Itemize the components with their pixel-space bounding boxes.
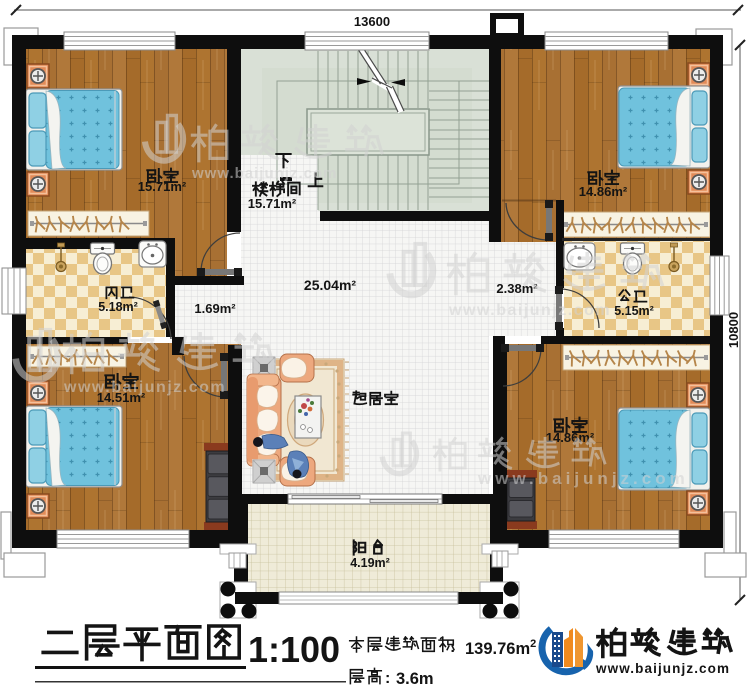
svg-text:3.6m: 3.6m bbox=[396, 670, 434, 688]
svg-text::: : bbox=[385, 670, 390, 687]
svg-text:4.19m²: 4.19m² bbox=[350, 556, 390, 570]
svg-text:1.69m²: 1.69m² bbox=[194, 301, 236, 316]
svg-text:5.15m²: 5.15m² bbox=[614, 304, 654, 318]
svg-text:10800: 10800 bbox=[726, 312, 741, 348]
svg-text:15.71m²: 15.71m² bbox=[248, 196, 297, 211]
svg-text:139.76m2: 139.76m2 bbox=[465, 638, 536, 658]
svg-text:www.baijunjz.com: www.baijunjz.com bbox=[191, 165, 337, 182]
svg-text:www.baijunjz.com: www.baijunjz.com bbox=[477, 469, 689, 488]
svg-text:www.baijunjz.com: www.baijunjz.com bbox=[448, 302, 611, 319]
svg-text:www.baijunjz.com: www.baijunjz.com bbox=[63, 379, 226, 396]
svg-text::: : bbox=[450, 639, 455, 656]
svg-text:25.04m²: 25.04m² bbox=[304, 277, 356, 293]
svg-text:14.86m²: 14.86m² bbox=[579, 184, 628, 199]
svg-text:5.18m²: 5.18m² bbox=[98, 300, 138, 314]
svg-text:13600: 13600 bbox=[354, 14, 390, 29]
svg-text:15.71m²: 15.71m² bbox=[138, 179, 187, 194]
svg-text:www.baijunjz.com: www.baijunjz.com bbox=[595, 661, 730, 676]
svg-text:1:100: 1:100 bbox=[248, 629, 340, 670]
